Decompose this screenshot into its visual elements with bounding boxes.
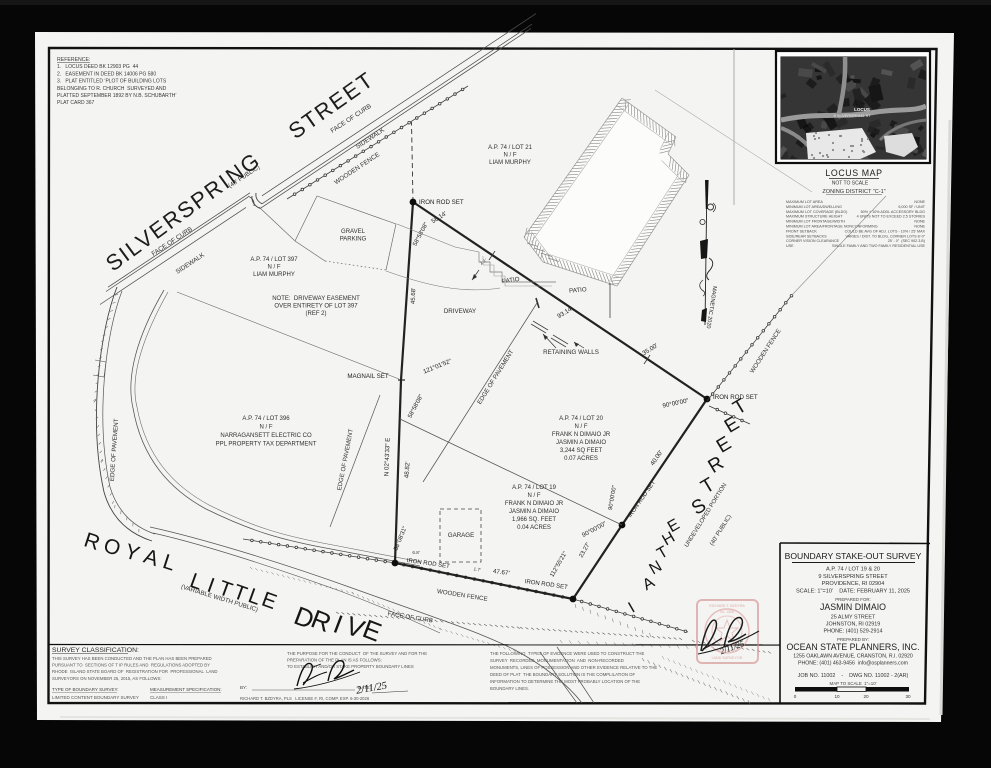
svg-text:SURVEY RECORDED MONUMENTATIO: SURVEY RECORDED MONUMENTATION AND NON-RE… [490, 658, 624, 663]
svg-text:IRON ROD SET: IRON ROD SET [419, 199, 464, 206]
svg-text:SINGLE FAMILY AND TWO FAMILY R: SINGLE FAMILY AND TWO FAMILY RESIDENTIAL… [832, 244, 925, 248]
svg-text:LOCUS: LOCUS [854, 107, 870, 112]
svg-text:OCEAN STATE PLANNERS, INC.: OCEAN STATE PLANNERS, INC. [786, 642, 919, 652]
svg-text:TYPE OF BOUNDARY SURVEY:: TYPE OF BOUNDARY SURVEY: [52, 687, 119, 692]
svg-text:5,000 SF / UNIT: 5,000 SF / UNIT [898, 205, 925, 209]
svg-text:PLAT CARD 367: PLAT CARD 367 [57, 100, 95, 106]
svg-text:VARIES / DIST. TO BLDG, CORNER: VARIES / DIST. TO BLDG, CORNER LOTS 8'-0… [846, 234, 926, 238]
svg-text:LIAM MURPHY: LIAM MURPHY [253, 272, 295, 278]
svg-text:SIDE/REAR SETBACKS: SIDE/REAR SETBACKS [786, 234, 827, 238]
svg-text:BY:: BY: [240, 685, 247, 690]
svg-text:10: 10 [834, 694, 840, 699]
svg-text:SCALE: 1"=10' DATE: FEBRUAR: SCALE: 1"=10' DATE: FEBRUARY 11, 2025 [796, 588, 910, 594]
svg-text:PHONE: (401) 529-2914: PHONE: (401) 529-2914 [823, 629, 882, 635]
svg-text:LIAM MURPHY: LIAM MURPHY [489, 160, 531, 166]
svg-text:PHONE: (401) 463-9456 info@os: PHONE: (401) 463-9456 info@osplanners.co… [798, 661, 908, 667]
svg-text:50% + 10% ADDL ACCESSORY BLDG: 50% + 10% ADDL ACCESSORY BLDG [861, 210, 926, 214]
svg-text:1255 OAKLAWN AVENUE, CRANSTON,: 1255 OAKLAWN AVENUE, CRANSTON, R.I. 0292… [793, 654, 913, 660]
svg-text:COULD BE AVG OF ADJ. LOTS - 10: COULD BE AVG OF ADJ. LOTS - 10% / 25' MA… [845, 229, 926, 233]
svg-text:45.68': 45.68' [411, 288, 418, 304]
svg-text:N 02°43'33" E: N 02°43'33" E [383, 438, 391, 477]
svg-text:JOHNSTON, RI 02919: JOHNSTON, RI 02919 [826, 622, 880, 628]
svg-text:20: 20 [863, 694, 869, 699]
svg-text:RICHARD T. BZDYRA, PLS LICEN: RICHARD T. BZDYRA, PLS LICENSE #, RI, CO… [240, 696, 370, 701]
svg-text:RICHARD T. BZDYRA: RICHARD T. BZDYRA [709, 604, 745, 608]
svg-text:30: 30 [905, 694, 911, 699]
svg-text:A.P. 74 / LOT 396: A.P. 74 / LOT 396 [242, 416, 290, 422]
svg-text:MINIMUM LOT AREA/DWELLING: MINIMUM LOT AREA/DWELLING [786, 205, 842, 209]
svg-text:N / F: N / F [504, 153, 517, 159]
svg-text:0.07 ACRES: 0.07 ACRES [564, 456, 598, 462]
svg-text:DRIVEWAY: DRIVEWAY [444, 308, 476, 315]
svg-text:DEED OF PLAT THE BOUNDARY SOL: DEED OF PLAT THE BOUNDARY SOLUTION IS TH… [490, 672, 635, 677]
svg-text:6.8': 6.8' [412, 550, 419, 555]
svg-text:25' - 0" (SEC 902.3.B): 25' - 0" (SEC 902.3.B) [888, 239, 925, 243]
svg-text:A.P. 74 / LOT 19: A.P. 74 / LOT 19 [512, 485, 556, 491]
svg-text:NONE: NONE [914, 220, 925, 224]
svg-text:NARRAGANSETT ELECTRIC CO: NARRAGANSETT ELECTRIC CO [220, 433, 312, 439]
svg-text:LIMITED CONTENT BOUNDARY SURVE: LIMITED CONTENT BOUNDARY SURVEY [52, 695, 139, 700]
svg-text:REFERENCE:: REFERENCE: [57, 57, 90, 63]
svg-text:NOTE: DRIVEWAY EASEMENT: NOTE: DRIVEWAY EASEMENT [272, 296, 360, 302]
svg-text:USE: USE [786, 244, 794, 248]
svg-text:JASMIN DIMAIO: JASMIN DIMAIO [820, 602, 886, 612]
svg-text:PPL PROPERTY TAX DEPARTMENT: PPL PROPERTY TAX DEPARTMENT [216, 442, 317, 448]
svg-text:0: 0 [794, 694, 797, 699]
svg-text:PREPARATION OF THE PLAN IS AS: PREPARATION OF THE PLAN IS AS FOLLOWS: [287, 658, 382, 663]
svg-text:A.P. 74 / LOT 21: A.P. 74 / LOT 21 [488, 145, 532, 151]
svg-text:PARKING: PARKING [340, 237, 367, 243]
svg-text:1.7': 1.7' [473, 567, 481, 573]
svg-text:48.82': 48.82' [403, 461, 411, 478]
svg-text:ZONING DISTRICT “C-1”: ZONING DISTRICT “C-1” [822, 189, 885, 195]
svg-text:INFORMATION TO DETERMINE THE M: INFORMATION TO DETERMINE THE MOST PROBAB… [490, 679, 640, 684]
svg-text:OVER ENTIRETY OF LOT 397: OVER ENTIRETY OF LOT 397 [274, 304, 358, 310]
svg-text:N / F: N / F [528, 493, 541, 499]
svg-text:3,244 SQ FEET: 3,244 SQ FEET [560, 448, 603, 454]
svg-text:BOUNDARY STAKE-OUT SURVEY: BOUNDARY STAKE-OUT SURVEY [785, 551, 922, 561]
svg-text:SURVEYORS ON NOVEMBER 25, 2015: SURVEYORS ON NOVEMBER 25, 2015, AS FOLLO… [52, 676, 162, 681]
svg-text:JASMIN A DIMAIO: JASMIN A DIMAIO [509, 509, 559, 515]
svg-text:BOUNDARY LINES.: BOUNDARY LINES. [490, 686, 529, 691]
svg-text:MAP TO SCALE 1"=10': MAP TO SCALE 1"=10' [830, 681, 877, 686]
svg-text:JASMIN A DIMAIO: JASMIN A DIMAIO [556, 440, 606, 446]
svg-text:FRONT SETBACK: FRONT SETBACK [786, 229, 817, 233]
svg-text:A.P. 74 / LOT 20: A.P. 74 / LOT 20 [559, 416, 603, 422]
svg-text:4 UNITS NOT TO EXCEED 2.5 STOR: 4 UNITS NOT TO EXCEED 2.5 STORIES [857, 215, 926, 219]
svg-text:9 SILVERSPRING STREET: 9 SILVERSPRING STREET [818, 574, 888, 580]
svg-text:0.04 ACRES: 0.04 ACRES [517, 525, 551, 531]
svg-text:LOCUS MAP: LOCUS MAP [825, 168, 882, 178]
svg-text:A.P. 74 / LOT 19 & 20: A.P. 74 / LOT 19 & 20 [826, 567, 880, 573]
svg-text:PROVIDENCE, RI 02904: PROVIDENCE, RI 02904 [822, 581, 885, 587]
svg-text:N / F: N / F [268, 265, 281, 271]
svg-text:MONUMENTS, LINES OF POSSESSION: MONUMENTS, LINES OF POSSESSION AND OTHER… [490, 665, 657, 670]
svg-text:NONE: NONE [914, 200, 925, 204]
svg-text:MAGNAIL SET: MAGNAIL SET [347, 373, 389, 380]
svg-text:N / F: N / F [260, 425, 273, 431]
svg-text:MINIMUM LOT AREA/FRONTAGE NONC: MINIMUM LOT AREA/FRONTAGE NONCONFORMING [786, 225, 878, 229]
svg-text:BELONGING TO R. CHURCH SURVEY: BELONGING TO R. CHURCH SURVEYED AND [57, 86, 167, 92]
svg-text:25 ALMY STREET: 25 ALMY STREET [831, 615, 876, 621]
svg-text:MAXIMUM STRUCTURE HEIGHT: MAXIMUM STRUCTURE HEIGHT [786, 215, 843, 219]
svg-text:A.P. 74 / LOT 397: A.P. 74 / LOT 397 [250, 257, 298, 263]
svg-text:N / F: N / F [575, 424, 588, 430]
svg-text:THE PURPOSE FOR THE CONDUCT O: THE PURPOSE FOR THE CONDUCT OF THE SURVE… [287, 651, 427, 656]
svg-text:FRANK N DIMAIO JR: FRANK N DIMAIO JR [552, 432, 611, 438]
svg-text:JOB NO. 11002 - DWG NO.: JOB NO. 11002 - DWG NO. 11002 - 2(AR) [798, 673, 909, 679]
svg-text:GRAVEL: GRAVEL [341, 229, 366, 235]
svg-text:CLASS I: CLASS I [150, 695, 167, 700]
svg-text:MEASUREMENT SPECIFICATION:: MEASUREMENT SPECIFICATION: [150, 687, 222, 692]
svg-text:1,966 SQ. FEET: 1,966 SQ. FEET [512, 517, 556, 523]
svg-text:No. 1868: No. 1868 [720, 610, 734, 614]
svg-text:THE FOLLOWING TYPES OF EVIDEN: THE FOLLOWING TYPES OF EVIDENCE WERE USE… [490, 651, 644, 656]
svg-text:NOT TO SCALE: NOT TO SCALE [832, 181, 869, 187]
svg-text:NONE: NONE [914, 225, 925, 229]
svg-text:SURVEY CLASSIFICATION:: SURVEY CLASSIFICATION: [52, 647, 139, 654]
svg-text:9 SILVERSPRING ST: 9 SILVERSPRING ST [834, 114, 872, 118]
svg-text:3. PLAT ENTITLED ‘PLOT OF BU: 3. PLAT ENTITLED ‘PLOT OF BUILDING LOTS [57, 79, 167, 85]
svg-text:PURSUANT TO SECTIONS OF T IP: PURSUANT TO SECTIONS OF T IP RULES AND R… [52, 663, 210, 668]
svg-text:1. LOCUS DEED BK 12903 PG 4: 1. LOCUS DEED BK 12903 PG 44 [57, 64, 138, 70]
svg-text:CORNER VISION CLEARANCE: CORNER VISION CLEARANCE [786, 239, 840, 243]
svg-text:LAND SURVEYOR: LAND SURVEYOR [712, 656, 743, 660]
svg-text:RHODE ISLAND STATE BOARD OF: RHODE ISLAND STATE BOARD OF REGISTRATION… [52, 669, 218, 674]
svg-text:MAXIMUM LOT AREA: MAXIMUM LOT AREA [786, 200, 823, 204]
svg-text:GARAGE: GARAGE [448, 532, 474, 539]
svg-text:PLATTED SEPTEMBER 1892 BY N.B.: PLATTED SEPTEMBER 1892 BY N.B. SCHUBARTH… [57, 93, 176, 99]
svg-text:MAXIMUM LOT COVERAGE (BLDG): MAXIMUM LOT COVERAGE (BLDG) [786, 210, 847, 214]
svg-text:RETAINING WALLS: RETAINING WALLS [543, 349, 599, 356]
svg-text:MINIMUM LOT FRONTAGE/WIDTH: MINIMUM LOT FRONTAGE/WIDTH [786, 220, 845, 224]
svg-text:(REF 2): (REF 2) [306, 311, 327, 317]
svg-text:2. EASEMENT IN DEED BK 14006: 2. EASEMENT IN DEED BK 14006 PG 580 [57, 71, 156, 77]
svg-text:FRANK N DIMAIO JR: FRANK N DIMAIO JR [505, 501, 564, 507]
svg-text:THIS SURVEY HAS BEEN CONDUCTED: THIS SURVEY HAS BEEN CONDUCTED AND THE P… [52, 656, 212, 661]
